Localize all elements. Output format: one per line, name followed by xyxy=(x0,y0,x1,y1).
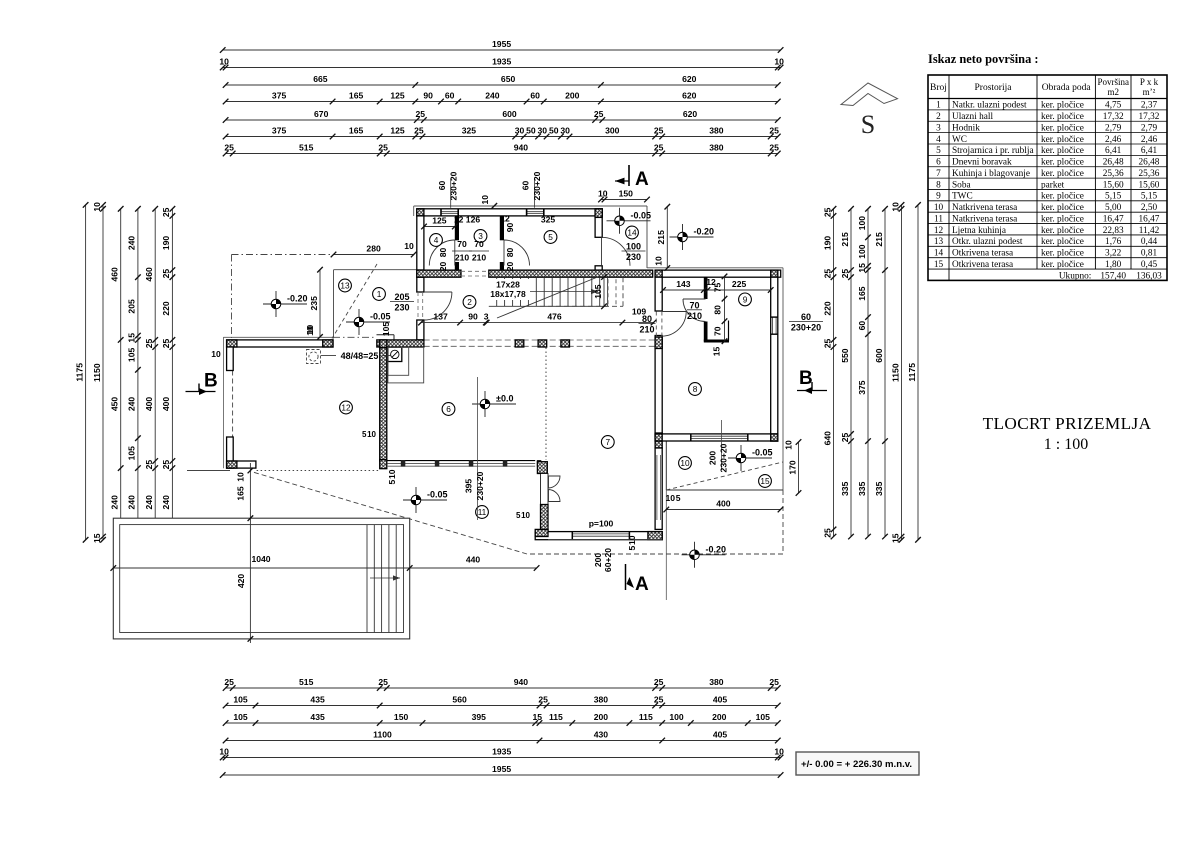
svg-text:10: 10 xyxy=(774,57,784,67)
svg-text:105: 105 xyxy=(127,348,137,363)
svg-text:25: 25 xyxy=(822,269,832,279)
svg-text:15: 15 xyxy=(127,333,137,343)
svg-text:15: 15 xyxy=(92,533,102,543)
svg-text:25: 25 xyxy=(769,677,779,687)
svg-text:3: 3 xyxy=(936,123,941,133)
svg-text:m2: m2 xyxy=(1107,87,1119,97)
svg-text:Kuhinja i blagovanje: Kuhinja i blagovanje xyxy=(952,169,1030,179)
svg-text:300: 300 xyxy=(605,126,620,136)
svg-text:15: 15 xyxy=(712,347,722,357)
svg-text:940: 940 xyxy=(514,143,529,153)
svg-text:-0.05: -0.05 xyxy=(752,448,773,458)
svg-text:200: 200 xyxy=(712,712,727,722)
svg-text:25: 25 xyxy=(416,109,426,119)
svg-text:1175: 1175 xyxy=(907,363,917,382)
svg-text:157,40: 157,40 xyxy=(1100,271,1126,281)
svg-text:25: 25 xyxy=(161,269,171,279)
svg-text:10: 10 xyxy=(934,203,944,213)
svg-text:25: 25 xyxy=(538,695,548,705)
svg-text:1 : 100: 1 : 100 xyxy=(1044,436,1088,453)
svg-text:ker. pločice: ker. pločice xyxy=(1041,203,1084,213)
svg-text:620: 620 xyxy=(683,109,698,119)
svg-text:460: 460 xyxy=(110,267,120,282)
svg-text:1150: 1150 xyxy=(92,363,102,382)
svg-text:5,00: 5,00 xyxy=(1105,203,1122,213)
svg-text:230+20: 230+20 xyxy=(791,323,821,333)
svg-text:2,79: 2,79 xyxy=(1105,123,1122,133)
svg-text:Iskaz neto površina :: Iskaz neto površina : xyxy=(928,52,1039,66)
svg-text:16,47: 16,47 xyxy=(1139,214,1160,224)
svg-text:80: 80 xyxy=(438,248,448,258)
svg-text:ker. pločice: ker. pločice xyxy=(1041,192,1084,202)
svg-text:6: 6 xyxy=(936,158,941,168)
svg-text:48/48=25: 48/48=25 xyxy=(341,351,379,361)
svg-text:9: 9 xyxy=(936,192,941,202)
svg-text:105: 105 xyxy=(593,284,603,299)
svg-text:200: 200 xyxy=(565,91,580,101)
svg-text:25: 25 xyxy=(769,143,779,153)
svg-text:170: 170 xyxy=(787,460,797,475)
svg-text:25: 25 xyxy=(840,269,850,279)
svg-text:4: 4 xyxy=(434,235,439,245)
svg-text:4,75: 4,75 xyxy=(1105,101,1122,111)
svg-text:640: 640 xyxy=(822,431,832,446)
svg-text:100: 100 xyxy=(857,216,867,231)
svg-text:5: 5 xyxy=(548,232,553,242)
svg-text:125: 125 xyxy=(390,126,405,136)
svg-text:10: 10 xyxy=(305,326,315,336)
svg-text:620: 620 xyxy=(682,74,697,84)
svg-text:10: 10 xyxy=(680,458,690,468)
svg-text:10: 10 xyxy=(211,349,221,359)
svg-text:15: 15 xyxy=(533,712,543,722)
svg-text:Prostorija: Prostorija xyxy=(975,83,1013,93)
svg-text:90: 90 xyxy=(468,312,478,322)
svg-text:A: A xyxy=(635,574,649,595)
svg-text:15: 15 xyxy=(760,476,770,486)
svg-text:25: 25 xyxy=(822,207,832,217)
svg-text:Broj: Broj xyxy=(930,83,947,93)
svg-text:±0.0: ±0.0 xyxy=(496,394,513,404)
svg-text:4: 4 xyxy=(936,135,941,145)
svg-text:10: 10 xyxy=(219,57,229,67)
svg-text:25: 25 xyxy=(224,677,234,687)
svg-text:375: 375 xyxy=(272,126,287,136)
svg-text:210: 210 xyxy=(687,311,702,321)
svg-text:ker. pločice: ker. pločice xyxy=(1041,158,1084,168)
svg-text:25: 25 xyxy=(224,143,234,153)
svg-text:2,37: 2,37 xyxy=(1141,101,1158,111)
svg-text:335: 335 xyxy=(857,481,867,496)
svg-text:115: 115 xyxy=(639,712,653,722)
svg-text:26,48: 26,48 xyxy=(1139,158,1160,168)
svg-text:230: 230 xyxy=(394,303,409,313)
svg-text:400: 400 xyxy=(161,397,171,412)
svg-text:25: 25 xyxy=(594,109,604,119)
svg-text:325: 325 xyxy=(462,126,477,136)
svg-text:105: 105 xyxy=(756,712,771,722)
svg-text:m’²: m’² xyxy=(1143,87,1156,97)
svg-text:7: 7 xyxy=(936,169,941,179)
svg-text:25: 25 xyxy=(414,126,424,136)
svg-text:2,46: 2,46 xyxy=(1141,135,1158,145)
svg-text:335: 335 xyxy=(874,481,884,496)
svg-text:14: 14 xyxy=(627,227,637,237)
svg-text:105: 105 xyxy=(233,695,248,705)
svg-text:20: 20 xyxy=(438,262,448,272)
svg-text:25: 25 xyxy=(378,677,388,687)
svg-text:3: 3 xyxy=(484,312,489,322)
svg-text:230+20: 230+20 xyxy=(475,471,485,500)
svg-text:230+20: 230+20 xyxy=(532,171,542,200)
svg-text:210: 210 xyxy=(455,253,470,263)
svg-text:70: 70 xyxy=(689,300,699,310)
svg-text:75: 75 xyxy=(713,283,723,293)
svg-text:137: 137 xyxy=(433,312,448,322)
svg-text:22,83: 22,83 xyxy=(1103,226,1124,236)
svg-text:-0.20: -0.20 xyxy=(694,227,715,237)
svg-text:18x17,78: 18x17,78 xyxy=(490,289,526,299)
svg-text:25: 25 xyxy=(161,339,171,349)
svg-text:50: 50 xyxy=(526,126,536,136)
svg-text:12: 12 xyxy=(934,226,944,236)
svg-text:115: 115 xyxy=(549,712,563,722)
svg-text:ker. pločice: ker. pločice xyxy=(1041,123,1084,133)
svg-text:190: 190 xyxy=(822,236,832,251)
svg-text:Natkr. ulazni podest: Natkr. ulazni podest xyxy=(952,101,1027,111)
svg-text:90: 90 xyxy=(423,91,433,101)
svg-text:90: 90 xyxy=(505,223,515,233)
svg-text:220: 220 xyxy=(822,301,832,316)
svg-text:240: 240 xyxy=(161,495,171,510)
svg-text:240: 240 xyxy=(144,495,154,510)
svg-text:26,48: 26,48 xyxy=(1103,158,1124,168)
svg-text:280: 280 xyxy=(366,244,381,254)
svg-text:25: 25 xyxy=(822,339,832,349)
svg-text:200: 200 xyxy=(708,451,718,466)
svg-text:-0.05: -0.05 xyxy=(427,490,448,500)
svg-text:190: 190 xyxy=(161,236,171,251)
svg-text:25: 25 xyxy=(654,695,664,705)
svg-text:10: 10 xyxy=(219,747,229,757)
svg-text:80: 80 xyxy=(713,305,723,315)
svg-text:70: 70 xyxy=(474,239,484,249)
svg-text:ker. pločice: ker. pločice xyxy=(1041,146,1084,156)
svg-text:Ukupno:: Ukupno: xyxy=(1059,271,1092,281)
svg-text:450: 450 xyxy=(110,397,120,412)
svg-text:6: 6 xyxy=(446,404,451,414)
svg-text:225: 225 xyxy=(732,279,747,289)
svg-text:60: 60 xyxy=(801,312,811,322)
svg-text:940: 940 xyxy=(514,677,529,687)
svg-text:-0.20: -0.20 xyxy=(706,544,727,554)
svg-text:TWC: TWC xyxy=(952,192,973,202)
svg-text:100: 100 xyxy=(626,242,641,252)
svg-text:ker. pločice: ker. pločice xyxy=(1041,169,1084,179)
svg-text:S: S xyxy=(861,110,875,139)
svg-text:665: 665 xyxy=(313,74,328,84)
svg-text:Otkrivena terasa: Otkrivena terasa xyxy=(952,260,1013,270)
svg-text:25: 25 xyxy=(822,528,832,538)
svg-text:165: 165 xyxy=(349,91,364,101)
svg-text:2,46: 2,46 xyxy=(1105,135,1122,145)
svg-text:150: 150 xyxy=(619,189,634,199)
svg-text:1175: 1175 xyxy=(74,363,84,382)
svg-text:230+20: 230+20 xyxy=(449,171,459,200)
svg-text:1040: 1040 xyxy=(251,554,270,564)
svg-text:215: 215 xyxy=(840,232,850,247)
svg-text:Površina: Površina xyxy=(1097,77,1129,87)
svg-text:230: 230 xyxy=(626,252,641,262)
svg-text:460: 460 xyxy=(144,267,154,282)
svg-text:210: 210 xyxy=(639,325,654,335)
svg-text:200: 200 xyxy=(593,553,603,568)
svg-text:60: 60 xyxy=(530,91,540,101)
svg-text:5 10: 5 10 xyxy=(627,535,637,550)
svg-text:1,80: 1,80 xyxy=(1105,260,1122,270)
svg-text:1: 1 xyxy=(936,101,941,111)
svg-text:Ulazni hall: Ulazni hall xyxy=(952,112,993,122)
svg-text:560: 560 xyxy=(452,695,467,705)
svg-text:13: 13 xyxy=(934,237,944,247)
svg-text:210: 210 xyxy=(472,253,487,263)
svg-text:25: 25 xyxy=(161,460,171,470)
svg-text:230+20: 230+20 xyxy=(719,443,729,472)
svg-text:405: 405 xyxy=(713,730,728,740)
svg-text:143: 143 xyxy=(676,279,691,289)
svg-text:11,42: 11,42 xyxy=(1139,226,1160,236)
svg-text:5: 5 xyxy=(936,146,941,156)
svg-text:17,32: 17,32 xyxy=(1139,112,1160,122)
svg-text:30: 30 xyxy=(538,126,548,136)
svg-text:-0.20: -0.20 xyxy=(287,294,308,304)
svg-text:30: 30 xyxy=(560,126,570,136)
svg-text:A: A xyxy=(635,169,649,190)
svg-text:15: 15 xyxy=(890,533,900,543)
svg-text:25: 25 xyxy=(654,677,664,687)
svg-text:ker. pločice: ker. pločice xyxy=(1041,214,1084,224)
svg-text:10: 10 xyxy=(654,256,664,266)
svg-text:6,41: 6,41 xyxy=(1105,146,1122,156)
svg-text:12: 12 xyxy=(500,214,510,224)
svg-text:10: 10 xyxy=(480,195,490,205)
svg-text:0,44: 0,44 xyxy=(1141,237,1158,247)
svg-text:Soba: Soba xyxy=(952,180,971,190)
svg-text:220: 220 xyxy=(161,301,171,316)
svg-text:405: 405 xyxy=(713,695,728,705)
svg-text:60: 60 xyxy=(437,181,447,191)
svg-text:25: 25 xyxy=(378,143,388,153)
svg-text:12 126: 12 126 xyxy=(454,215,481,225)
svg-text:60+20: 60+20 xyxy=(603,548,613,572)
svg-text:240: 240 xyxy=(485,91,500,101)
svg-text:1935: 1935 xyxy=(492,57,511,67)
svg-text:60: 60 xyxy=(857,321,867,331)
svg-text:14: 14 xyxy=(934,249,944,259)
svg-text:Strojarnica i pr. rublja: Strojarnica i pr. rublja xyxy=(952,146,1034,156)
svg-text:235: 235 xyxy=(309,296,319,311)
svg-text:136,03: 136,03 xyxy=(1136,271,1162,281)
svg-text:15,60: 15,60 xyxy=(1103,180,1124,190)
svg-text:105: 105 xyxy=(233,712,248,722)
svg-text:400: 400 xyxy=(716,499,731,509)
svg-text:620: 620 xyxy=(682,91,697,101)
svg-text:17x28: 17x28 xyxy=(496,280,520,290)
svg-text:5 10: 5 10 xyxy=(516,511,531,520)
svg-text:70: 70 xyxy=(457,239,467,249)
svg-text:100: 100 xyxy=(669,712,684,722)
svg-text:11: 11 xyxy=(478,507,487,517)
svg-text:80: 80 xyxy=(505,248,515,258)
svg-text:30: 30 xyxy=(515,126,525,136)
svg-text:1,76: 1,76 xyxy=(1105,237,1122,247)
svg-text:10: 10 xyxy=(598,189,608,199)
svg-text:240: 240 xyxy=(127,397,137,412)
svg-text:0,45: 0,45 xyxy=(1141,260,1158,270)
svg-text:Ljetna kuhinja: Ljetna kuhinja xyxy=(952,226,1006,236)
svg-text:435: 435 xyxy=(310,695,325,705)
svg-text:6,41: 6,41 xyxy=(1141,146,1158,156)
svg-text:5 10: 5 10 xyxy=(387,469,397,484)
svg-text:ker. pločice: ker. pločice xyxy=(1041,237,1084,247)
svg-text:10 5: 10 5 xyxy=(665,493,680,503)
svg-text:+/- 0.00 = + 226.30 m.n.v.: +/- 0.00 = + 226.30 m.n.v. xyxy=(801,759,912,770)
svg-text:2: 2 xyxy=(936,112,941,122)
svg-text:5 10: 5 10 xyxy=(362,430,377,439)
svg-text:Otkr. ulazni podest: Otkr. ulazni podest xyxy=(952,237,1023,247)
svg-text:335: 335 xyxy=(840,481,850,496)
svg-text:395: 395 xyxy=(464,479,474,494)
svg-text:2,50: 2,50 xyxy=(1141,203,1158,213)
svg-text:-0.05: -0.05 xyxy=(631,210,652,220)
svg-text:100: 100 xyxy=(857,244,867,259)
svg-text:12: 12 xyxy=(341,402,351,412)
svg-text:Natkrivena terasa: Natkrivena terasa xyxy=(952,214,1017,224)
svg-text:1935: 1935 xyxy=(492,747,511,757)
svg-text:1150: 1150 xyxy=(890,363,900,382)
svg-text:435: 435 xyxy=(310,712,325,722)
svg-text:Hodnik: Hodnik xyxy=(952,123,980,133)
svg-text:25: 25 xyxy=(654,126,664,136)
svg-text:WC: WC xyxy=(952,135,967,145)
svg-text:ker. pločice: ker. pločice xyxy=(1041,135,1084,145)
svg-text:205: 205 xyxy=(127,299,137,314)
svg-text:15: 15 xyxy=(857,263,867,273)
svg-text:380: 380 xyxy=(709,677,724,687)
svg-text:ker. pločice: ker. pločice xyxy=(1041,112,1084,122)
svg-text:B: B xyxy=(799,368,813,389)
svg-text:P x k: P x k xyxy=(1140,77,1159,87)
svg-text:380: 380 xyxy=(709,126,724,136)
svg-text:1100: 1100 xyxy=(373,730,392,740)
svg-text:670: 670 xyxy=(314,109,329,119)
svg-text:375: 375 xyxy=(272,91,287,101)
svg-text:5,15: 5,15 xyxy=(1105,192,1122,202)
svg-text:240: 240 xyxy=(127,495,137,510)
svg-text:550: 550 xyxy=(840,348,850,363)
svg-text:7: 7 xyxy=(605,437,610,447)
svg-text:2: 2 xyxy=(467,297,472,307)
svg-text:25: 25 xyxy=(840,433,850,443)
svg-text:Obrada poda: Obrada poda xyxy=(1042,83,1092,93)
svg-text:240: 240 xyxy=(110,495,120,510)
svg-text:1: 1 xyxy=(377,289,382,299)
svg-text:25: 25 xyxy=(161,207,171,217)
svg-text:13: 13 xyxy=(340,280,350,290)
svg-text:10: 10 xyxy=(890,202,900,212)
svg-text:0,81: 0,81 xyxy=(1141,249,1158,259)
svg-text:10: 10 xyxy=(404,241,414,251)
svg-text:215: 215 xyxy=(656,230,666,245)
svg-text:50: 50 xyxy=(549,126,559,136)
svg-text:parket: parket xyxy=(1041,180,1065,190)
svg-text:10: 10 xyxy=(92,202,102,212)
svg-text:16,47: 16,47 xyxy=(1103,214,1124,224)
svg-text:2,79: 2,79 xyxy=(1141,123,1158,133)
svg-text:600: 600 xyxy=(502,109,517,119)
svg-text:25: 25 xyxy=(654,143,664,153)
svg-text:165: 165 xyxy=(236,486,246,501)
svg-text:9: 9 xyxy=(743,294,748,304)
svg-text:150: 150 xyxy=(394,712,409,722)
svg-text:200: 200 xyxy=(594,712,609,722)
svg-text:25: 25 xyxy=(144,460,154,470)
svg-text:25: 25 xyxy=(769,126,779,136)
svg-text:11: 11 xyxy=(934,214,943,224)
svg-text:380: 380 xyxy=(709,143,724,153)
svg-text:ker. pločice: ker. pločice xyxy=(1041,260,1084,270)
svg-text:25: 25 xyxy=(144,339,154,349)
svg-text:15: 15 xyxy=(934,260,944,270)
svg-text:ker. pločice: ker. pločice xyxy=(1041,101,1084,111)
svg-text:650: 650 xyxy=(501,74,516,84)
svg-text:515: 515 xyxy=(299,677,314,687)
svg-text:B: B xyxy=(204,371,218,392)
svg-text:430: 430 xyxy=(594,730,609,740)
svg-text:1955: 1955 xyxy=(492,764,511,774)
svg-text:ker. pločice: ker. pločice xyxy=(1041,249,1084,259)
svg-text:25,36: 25,36 xyxy=(1139,169,1160,179)
svg-text:10: 10 xyxy=(784,440,794,450)
svg-text:375: 375 xyxy=(857,380,867,395)
svg-text:TLOCRT PRIZEMLJA: TLOCRT PRIZEMLJA xyxy=(983,414,1152,433)
svg-text:325: 325 xyxy=(541,215,556,225)
svg-text:515: 515 xyxy=(299,143,314,153)
svg-text:Otkrivena terasa: Otkrivena terasa xyxy=(952,249,1013,259)
svg-text:165: 165 xyxy=(857,286,867,301)
svg-text:Natkrivena terasa: Natkrivena terasa xyxy=(952,203,1017,213)
svg-text:10: 10 xyxy=(774,747,784,757)
svg-text:205: 205 xyxy=(394,292,409,302)
svg-text:395: 395 xyxy=(472,712,487,722)
svg-text:125: 125 xyxy=(390,91,405,101)
svg-text:1955: 1955 xyxy=(492,39,511,49)
svg-text:476: 476 xyxy=(547,312,562,322)
svg-text:10: 10 xyxy=(236,472,246,482)
svg-text:105: 105 xyxy=(381,322,391,337)
svg-text:25,36: 25,36 xyxy=(1103,169,1124,179)
svg-text:17,32: 17,32 xyxy=(1103,112,1124,122)
svg-text:440: 440 xyxy=(466,555,481,565)
svg-text:165: 165 xyxy=(349,126,364,136)
svg-text:125: 125 xyxy=(432,216,447,226)
svg-text:380: 380 xyxy=(594,695,609,705)
svg-text:215: 215 xyxy=(874,232,884,247)
svg-text:5,15: 5,15 xyxy=(1141,192,1158,202)
svg-text:ker. pločice: ker. pločice xyxy=(1041,226,1084,236)
svg-text:600: 600 xyxy=(874,348,884,363)
svg-text:p=100: p=100 xyxy=(589,519,614,529)
